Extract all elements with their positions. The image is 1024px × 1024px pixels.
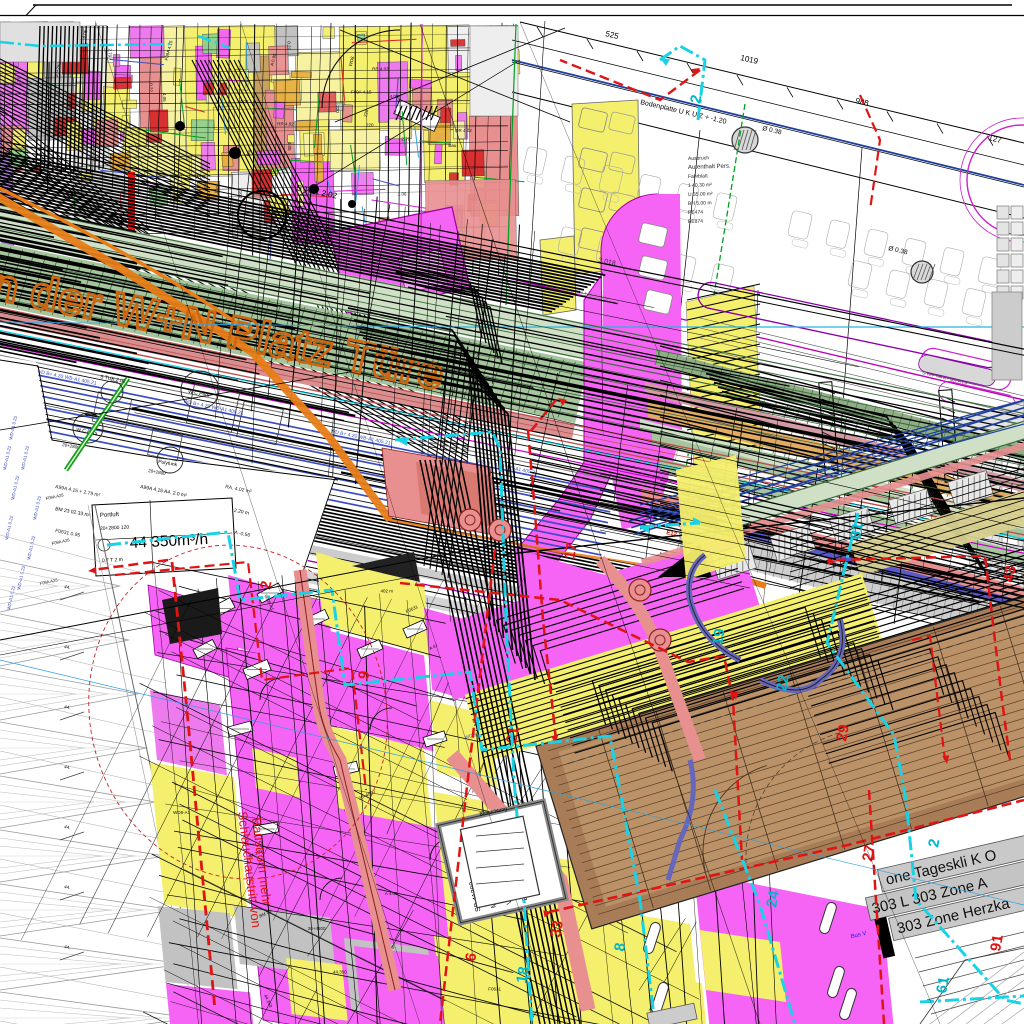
svg-text:2.79: 2.79 xyxy=(401,137,410,142)
svg-text:27: 27 xyxy=(859,843,879,862)
svg-text:Portluft: Portluft xyxy=(100,512,120,519)
svg-text:BE874: BE874 xyxy=(688,218,703,225)
svg-text:2.79: 2.79 xyxy=(108,48,113,57)
svg-text:4.05: 4.05 xyxy=(162,93,167,102)
svg-text:0.22: 0.22 xyxy=(287,41,292,50)
svg-text:220: 220 xyxy=(335,105,340,113)
svg-text:Fahrblatt: Fahrblatt xyxy=(688,173,709,180)
svg-text:61: 61 xyxy=(847,521,867,540)
svg-text:RR 4.02: RR 4.02 xyxy=(372,66,389,71)
svg-text:F0631: F0631 xyxy=(488,987,501,992)
svg-text:44.350: 44.350 xyxy=(333,970,347,975)
svg-text:4.05: 4.05 xyxy=(287,142,292,151)
svg-text:1.06: 1.06 xyxy=(398,192,407,197)
svg-text:PE474: PE474 xyxy=(688,209,703,216)
svg-text:20+4800: 20+4800 xyxy=(308,926,326,931)
svg-text:33: 33 xyxy=(547,919,567,938)
svg-text:91: 91 xyxy=(987,933,1007,952)
svg-text:Ausbruch: Ausbruch xyxy=(688,155,710,162)
svg-text:100: 100 xyxy=(238,191,243,199)
svg-text:220: 220 xyxy=(366,123,374,128)
svg-text:19: 19 xyxy=(709,627,729,646)
svg-text:WD8-A1: WD8-A1 xyxy=(173,810,190,815)
svg-text:U 35.00 m²: U 35.00 m² xyxy=(688,191,713,198)
svg-text:61: 61 xyxy=(933,975,953,994)
svg-text:RR 4.02: RR 4.02 xyxy=(277,122,294,127)
svg-text:17: 17 xyxy=(561,541,581,560)
svg-text:22: 22 xyxy=(773,673,793,692)
svg-text:RR 4.02: RR 4.02 xyxy=(455,128,472,133)
svg-text:F09A 4.15: F09A 4.15 xyxy=(351,89,372,94)
svg-text:29: 29 xyxy=(833,723,853,742)
svg-text:43: 43 xyxy=(1000,564,1020,583)
svg-text:1 40.30 m²: 1 40.30 m² xyxy=(688,182,712,189)
svg-text:Bau: Bau xyxy=(448,143,457,148)
svg-text:0.22: 0.22 xyxy=(149,83,154,92)
svg-text:18: 18 xyxy=(513,965,533,984)
svg-text:402 m: 402 m xyxy=(381,589,394,594)
svg-text:BH 5.00 m: BH 5.00 m xyxy=(688,200,712,207)
